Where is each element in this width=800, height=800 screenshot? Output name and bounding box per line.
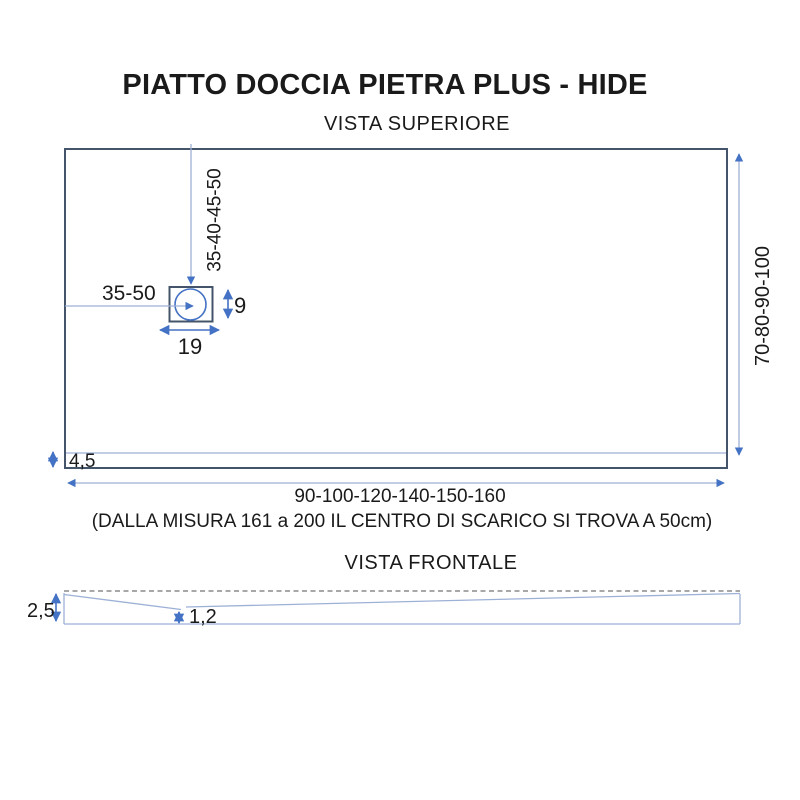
size-note: (DALLA MISURA 161 a 200 IL CENTRO DI SCA… xyxy=(92,512,713,531)
front-center-height-label: 1,2 xyxy=(189,607,217,627)
drain-circle xyxy=(175,289,206,320)
tray-outline xyxy=(65,149,727,468)
front-slope-right xyxy=(186,594,740,608)
front-view-heading: VISTA FRONTALE xyxy=(345,553,518,573)
border-thickness-label: 4,5 xyxy=(69,452,95,471)
drawing-page: PIATTO DOCCIA PIETRA PLUS - HIDE VISTA S… xyxy=(0,0,800,800)
front-slope-left xyxy=(64,595,181,610)
front-edge-height-label: 2,5 xyxy=(27,601,55,621)
drain-height-label: 9 xyxy=(234,295,246,317)
top-view-heading: VISTA SUPERIORE xyxy=(324,114,510,134)
drain-offset-y-label: 35-40-45-50 xyxy=(206,168,225,272)
tray-depths-label: 70-80-90-100 xyxy=(753,246,773,366)
drain-width-label: 19 xyxy=(178,336,202,358)
drain-offset-x-label: 35-50 xyxy=(102,283,156,304)
page-title: PIATTO DOCCIA PIETRA PLUS - HIDE xyxy=(122,71,647,100)
tray-widths-label: 90-100-120-140-150-160 xyxy=(294,487,505,506)
